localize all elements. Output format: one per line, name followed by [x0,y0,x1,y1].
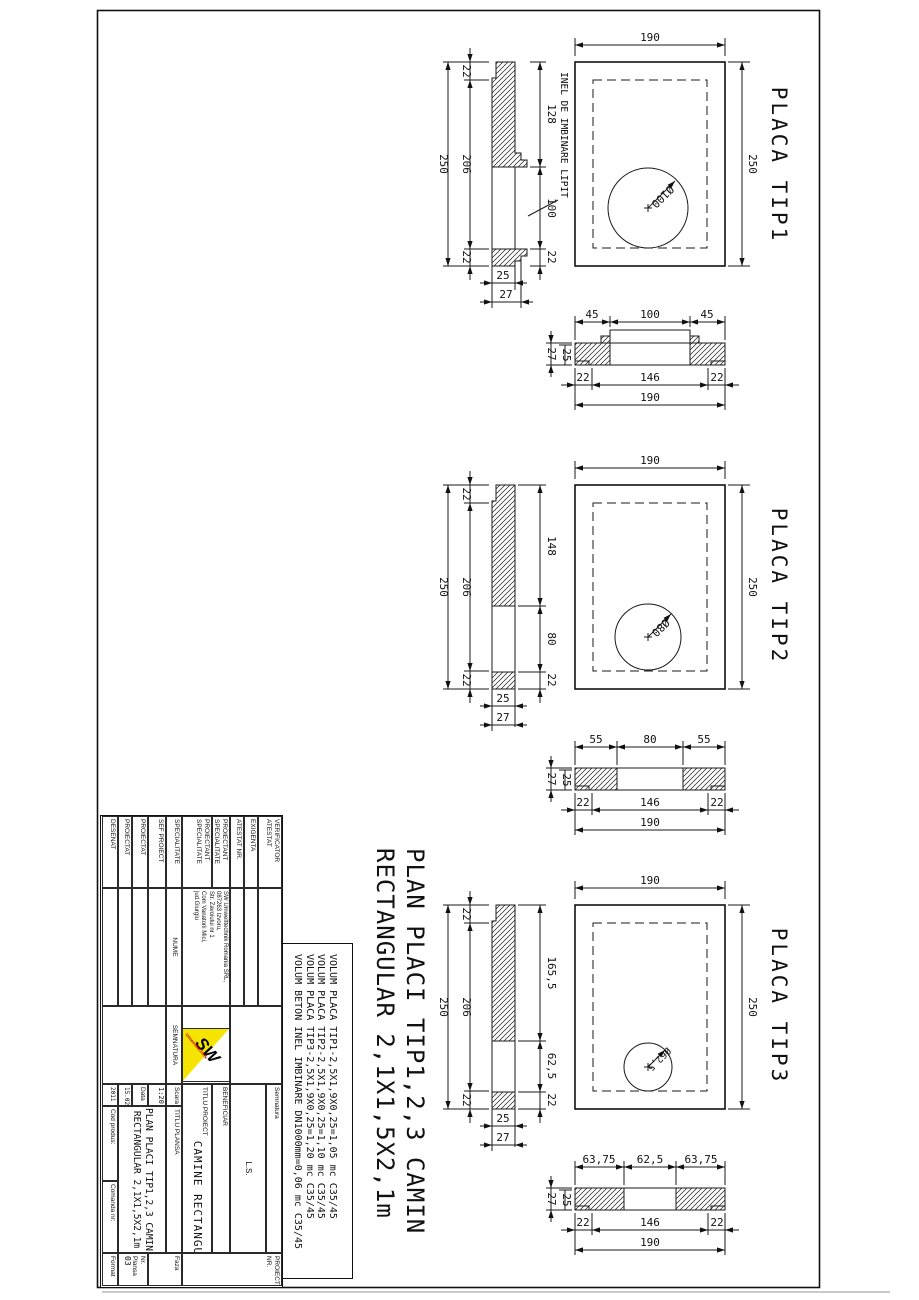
proiectat-cell: PROIECTAT [132,816,148,888]
dim-label: 250 [437,154,450,174]
section-step-left [601,336,610,343]
dim-label: 63,75 [684,1153,717,1166]
dim-label: 190 [640,816,660,829]
volume-note: VOLUM PLACA TIP3-2,5X1,9X0,25=1,20 mc C3… [304,954,316,1278]
dim-label: 22 [545,1093,558,1106]
dim-label: 27 [496,1131,509,1144]
dim-label: 62,5 [545,1053,558,1080]
data-value: 15.02. [118,1084,132,1106]
plan-outline [575,485,725,689]
dim-label: 250 [437,577,450,597]
page-shadow [102,1291,890,1293]
plate-title: PLACA TIP3 [767,928,791,1084]
empty-cell [102,888,118,1006]
ring-note: INEL DE IMBINARE LIPIT [558,72,569,198]
dim-label: 22 [460,907,473,920]
dim-label: 128 [545,104,558,124]
section-hatch-right [676,1188,725,1210]
dim-label: 22 [460,1093,473,1106]
section-hatch-right [690,343,725,365]
empty-cell [102,1006,166,1084]
dim-label: 190 [640,874,660,887]
dim-label: 27 [496,711,509,724]
dim-label: 63,75 [582,1153,615,1166]
nr-plansa-label: Nr. Plansa [131,1256,146,1283]
dim-label: 22 [710,796,723,809]
dim-label: 25 [560,1193,573,1206]
cod-produs-cell: Cod produs: [102,1106,118,1181]
semnatura-label: Semnatura [266,1084,282,1253]
dim-label: 25 [496,269,509,282]
dim-label: 22 [710,371,723,384]
dim-label: 55 [697,733,710,746]
plan-inner-dashed [593,80,707,248]
scara-value: 1:20 [148,1084,166,1106]
proiectant-cell: PROIECTANT SPECIALITATE [212,816,230,888]
section-hole [624,1188,676,1210]
dim-label: 146 [640,1216,660,1229]
nr-plansa-cell: Nr. Plansa 03 [118,1253,148,1286]
tip3-side-hatch-top [492,905,515,1041]
format-cell: Format [102,1253,118,1286]
hole-diameter-label: Ø62,5 [645,1045,673,1073]
verificator-cell: VERIFICATOR ATESTAT [258,816,282,888]
dim-label: 45 [700,308,713,321]
scara-label: Scara [166,1084,182,1106]
beneficiar-cell: BENEFICIAR [212,1084,230,1253]
volume-note: VOLUM PLACA TIP2-2,5X1,9X0,25=1,10 mc C3… [315,954,327,1278]
faza-cell: Faza [148,1253,182,1286]
section-hole [617,768,683,790]
sheet-title-line2: RECTANGULAR 2,1X1,5X2,1m [370,848,400,1220]
volume-notes-box: VOLUM PLACA TIP1-2,5X1,9X0,25=1,05 mc C3… [282,943,353,1279]
dim-label: 25 [496,692,509,705]
dim-label: 146 [640,796,660,809]
dim-label: 190 [640,391,660,404]
plan-outline [575,905,725,1109]
tip1-side-view: 250 22 206 22 128 100 22 INEL DE IMBINAR… [437,48,569,308]
tip2-side-hatch-top [492,485,515,606]
empty-cell [244,888,258,1006]
dim-label: 22 [545,673,558,686]
dim-label: 22 [576,371,589,384]
semnatura-header: SEMNATURA [166,1006,182,1084]
title-block: VERIFICATOR ATESTAT EXIGENTA ATESTAT NR.… [100,815,283,1288]
specialitate-header: SPECIALITATE [166,816,182,888]
dim-label: 25 [560,348,573,361]
nr-plansa-value: 03 [124,1256,132,1283]
tip1-plan-view: Ø100 190 250 PLACA TIP1 [575,31,791,266]
ls-cell: L.S. [230,1084,266,1253]
dim-label: 100 [640,308,660,321]
tip3-side-hatch-bottom [492,1092,515,1109]
section-hatch-left [575,343,610,365]
volume-note: VOLUM BETON INEL IMBINARE DN1000mm=0,06 … [292,954,304,1278]
titlu-proiect-value: CAMINE RECTANGULARE [193,1141,201,1253]
empty-cell [148,888,166,1006]
section-hole [610,343,690,365]
titlu-plansa-value: PLAN PLACI TIP1,2,3 CAMIN RECTANGULAR 2,… [118,1106,166,1253]
section-hatch-right [683,768,725,790]
dim-label: 22 [460,250,473,263]
dim-label: 148 [545,536,558,556]
company-line: jud.Giurgiu [192,891,199,1003]
empty-cell [132,888,148,1006]
dim-label: 55 [589,733,602,746]
empty-cell [230,888,244,1006]
dim-label: 22 [460,64,473,77]
dim-label: 22 [545,250,558,263]
section-hatch-left [575,1188,624,1210]
dim-label: 250 [746,997,759,1017]
nume-header: NUME [166,888,182,1006]
dim-label: 22 [576,796,589,809]
company-line: SW Umwelttechnik Romania SRL, [221,891,228,1003]
hole-diameter-label: Ø80 [649,616,672,639]
company-line: Str. Zavoiului nr 1 [206,891,213,1003]
tip2-side-hatch-bottom [492,672,515,689]
tip3-side-hole [492,1041,515,1092]
dim-label: 25 [560,773,573,786]
tip1-side-hatch-top [492,62,527,167]
plate-title: PLACA TIP2 [767,508,791,664]
empty-cell [118,888,132,1006]
tip2-side-hole [492,606,515,672]
company-line: 087263 Izvoru, [214,891,221,1003]
dim-label: 206 [460,997,473,1017]
dim-label: 190 [640,31,660,44]
dim-label: 62,5 [637,1153,664,1166]
tip1-section-view: 45 100 45 27 25 22 146 22 190 [545,308,739,410]
section-step-right [690,336,699,343]
company-line: Com Vanatorii Mici, [199,891,206,1003]
section-hatch-left [575,768,617,790]
plate-title: PLACA TIP1 [767,87,791,243]
company-address: SW Umwelttechnik Romania SRL, 087263 Izv… [182,888,230,1006]
sef-proiect-cell: SEF PROIECT [148,816,166,888]
dim-label: 45 [585,308,598,321]
tip3-side-view: 250 22 206 22 165,5 62,5 22 25 27 [437,891,558,1151]
titlu-plansa-line1: PLAN PLACI TIP1,2,3 CAMIN [142,1108,154,1251]
dim-label: 146 [640,371,660,384]
proiect-nr-cell: PROIECT NR. [182,1253,282,1286]
hole-diameter-label: Ø100 [649,183,677,211]
dim-label: 27 [545,772,558,785]
dim-label: 22 [460,487,473,500]
dim-label: 80 [545,632,558,645]
dim-label: 250 [746,154,759,174]
volume-note: VOLUM PLACA TIP1-2,5X1,9X0,25=1,05 mc C3… [327,954,339,1278]
sheet-title-line1: PLAN PLACI TIP1,2,3 CAMIN [400,848,430,1220]
tip2-plan-view: Ø80 190 250 PLACA TIP2 [575,454,791,689]
data-label: Data [132,1084,148,1106]
plan-inner-dashed [593,503,707,671]
dim-label: 250 [437,997,450,1017]
sw-logo-text: SW [191,1034,224,1068]
tip3-section-view: 63,75 62,5 63,75 27 25 22 146 22 190 [545,1153,739,1255]
dim-label: 22 [576,1216,589,1229]
titlu-plansa-label: TITLU PLANSA [166,1106,182,1253]
section-boss [610,330,690,343]
titlu-plansa-line2: RECTANGULAR 2,1X1,5X2,1m [130,1111,142,1248]
dim-label: 80 [643,733,656,746]
dim-label: 206 [460,577,473,597]
dim-label: 165,5 [545,956,558,989]
data-value: 2011 [102,1084,118,1106]
titlu-proiect-label: TITLU PROIECT [201,1087,211,1136]
dim-label: 27 [499,288,512,301]
empty-cell [258,888,282,1006]
tip1-side-hatch-bottom [492,249,527,266]
titlu-proiect-cell: TITLU PROIECT CAMINE RECTANGULARE [182,1084,212,1253]
desenat-cell: DESENAT [102,816,118,888]
tip1-side-hole [492,167,515,249]
proiectat-cell: PROIECTAT [118,816,132,888]
tip3-plan-view: Ø62,5 190 250 PLACA TIP3 [575,874,791,1109]
plan-outline [575,62,725,266]
dim-label: 206 [460,154,473,174]
dim-label: 190 [640,1236,660,1249]
dim-label: 250 [746,577,759,597]
dim-label: 22 [460,673,473,686]
dim-label: 190 [640,454,660,467]
dim-label: 27 [545,347,558,360]
dim-label: 22 [710,1216,723,1229]
exigenta-cell: EXIGENTA [244,816,258,888]
sheet-title: PLAN PLACI TIP1,2,3 CAMIN RECTANGULAR 2,… [366,848,430,1220]
tip2-section-view: 55 80 55 27 25 22 146 22 190 [545,733,739,835]
proiectant-cell: PROIECTANT SPECIALITATE [182,816,212,888]
comanda-cell: Comanda nr: [102,1181,118,1253]
empty-cell [230,1006,282,1084]
dim-label: 25 [496,1112,509,1125]
dim-label: 27 [545,1192,558,1205]
sw-logo: SW Umwelttechnik [182,1028,230,1082]
tip2-side-view: 250 22 206 22 148 80 22 25 27 [437,471,558,731]
atestat-nr-cell: ATESTAT NR. [230,816,244,888]
